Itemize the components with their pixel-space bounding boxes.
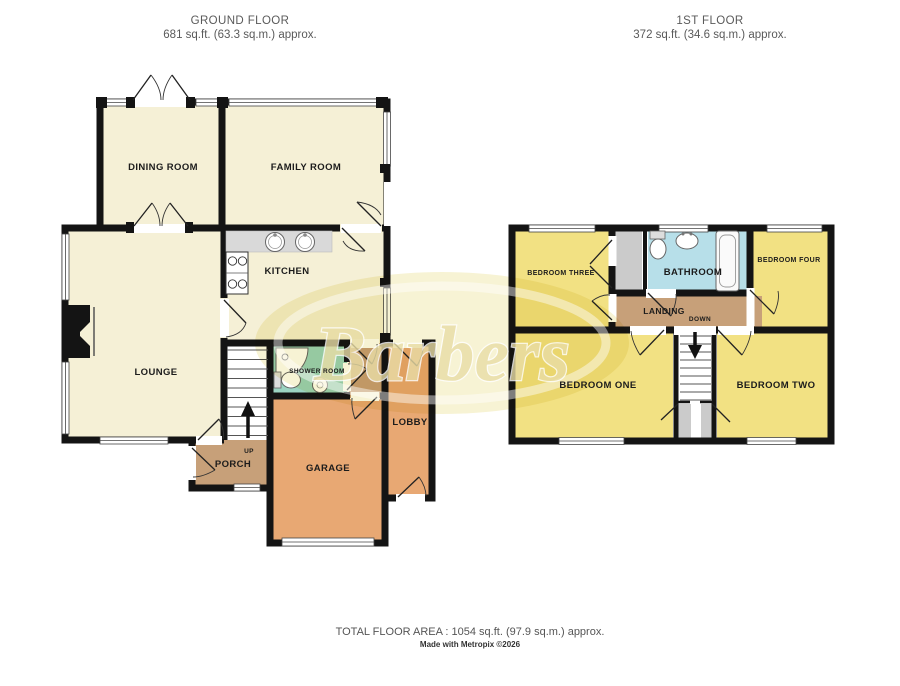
ground-floor-area: 681 sq.ft. (63.3 sq.m.) approx. (10, 28, 470, 42)
label-lobby: LOBBY (392, 417, 428, 428)
label-garage: GARAGE (306, 463, 350, 474)
footer: TOTAL FLOOR AREA : 1054 sq.ft. (97.9 sq.… (0, 625, 900, 650)
first-floor-area: 372 sq.ft. (34.6 sq.m.) approx. (480, 28, 900, 42)
ground-floor-title: GROUND FLOOR (10, 14, 470, 28)
cupboard-left (678, 404, 691, 438)
ground-floor-header: GROUND FLOOR 681 sq.ft. (63.3 sq.m.) app… (10, 14, 470, 42)
bathtub-icon (716, 231, 739, 291)
label-dining-room: DINING ROOM (128, 162, 198, 173)
first-floor-header: 1ST FLOOR 372 sq.ft. (34.6 sq.m.) approx… (480, 14, 900, 42)
label-bedroom-one: BEDROOM ONE (559, 380, 636, 391)
label-bathroom: BATHROOM (664, 267, 722, 278)
label-landing: LANDING (643, 306, 685, 316)
watermark-text: Barbers (313, 310, 570, 397)
kitchen-counter (226, 231, 332, 252)
room-lounge (65, 228, 224, 440)
label-stairs-down: DOWN (689, 316, 711, 323)
first-floor-title: 1ST FLOOR (480, 14, 900, 28)
label-porch: PORCH (215, 459, 251, 470)
label-kitchen: KITCHEN (264, 266, 309, 277)
sink-icon (676, 233, 698, 250)
toilet-icon (650, 231, 666, 259)
label-family-room: FAMILY ROOM (271, 162, 341, 173)
credit-line: Made with Metropix ©2026 (0, 639, 900, 650)
hob-icon (226, 252, 248, 294)
total-floor-area: TOTAL FLOOR AREA : 1054 sq.ft. (97.9 sq.… (0, 625, 900, 639)
floorplan-canvas: GROUND FLOOR 681 sq.ft. (63.3 sq.m.) app… (0, 0, 900, 686)
watermark: Barbers (255, 272, 629, 414)
floorplan-drawing: Barbers DINING ROOM FAMILY ROOM KITCHEN … (0, 0, 900, 686)
label-bedroom-four: BEDROOM FOUR (757, 257, 820, 264)
label-stairs-up: UP (244, 448, 254, 455)
cupboard-top (615, 231, 642, 290)
label-lounge: LOUNGE (134, 367, 177, 378)
label-shower-room: SHOWER ROOM (289, 368, 345, 375)
label-bedroom-three: BEDROOM THREE (527, 270, 594, 277)
room-bedroom-four (753, 231, 828, 327)
label-bedroom-two: BEDROOM TWO (737, 380, 816, 391)
